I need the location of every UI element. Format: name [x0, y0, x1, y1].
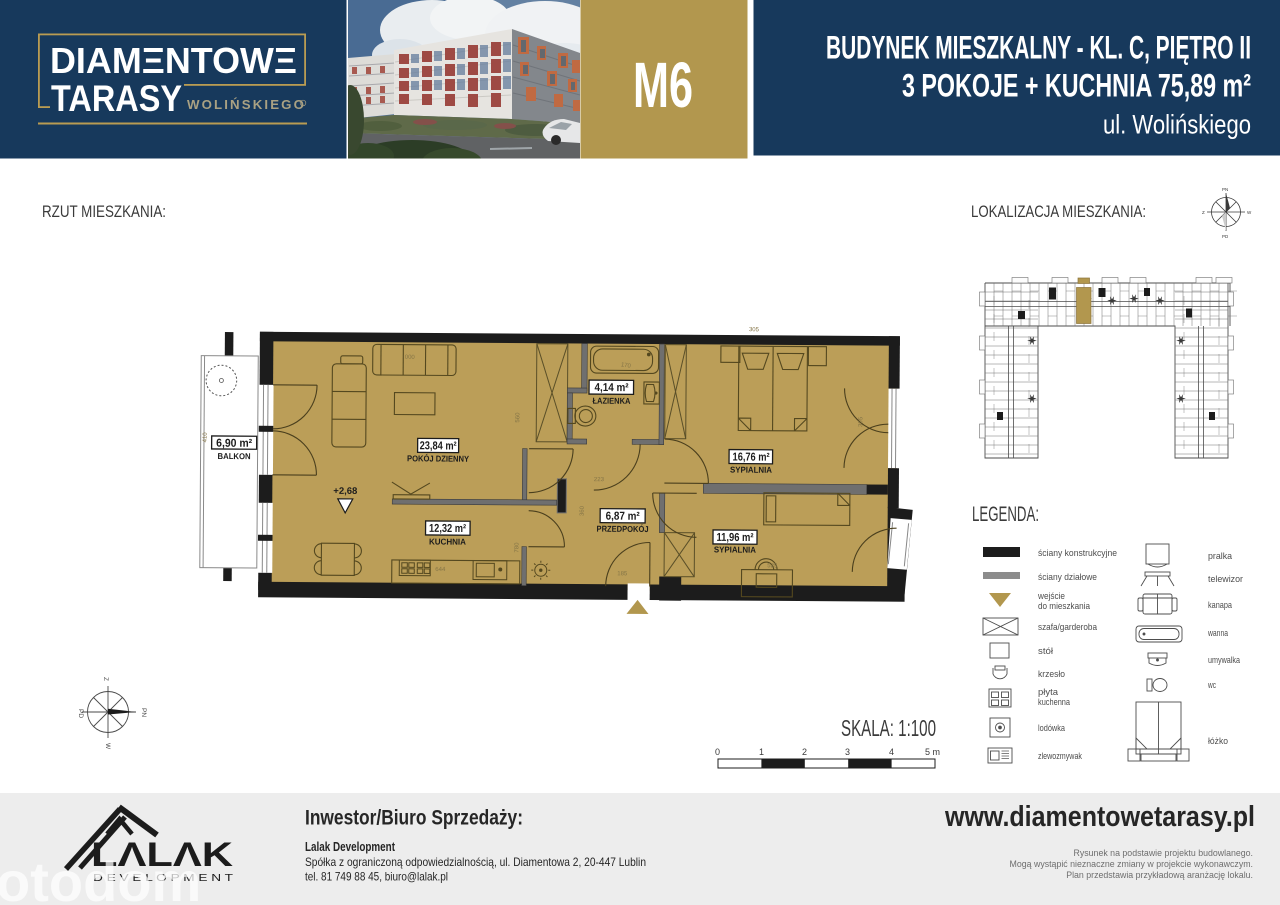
svg-text:644: 644 — [435, 567, 446, 573]
svg-text:2: 2 — [802, 747, 807, 757]
svg-text:6,87 m²: 6,87 m² — [606, 511, 640, 523]
svg-text:12,32 m²: 12,32 m² — [429, 523, 466, 535]
svg-text:LOKALIZACJA MIESZKANIA:: LOKALIZACJA MIESZKANIA: — [971, 202, 1146, 221]
svg-text:łóżko: łóżko — [1208, 736, 1228, 747]
svg-text:lodówka: lodówka — [1038, 723, 1066, 734]
svg-text:4,14 m²: 4,14 m² — [595, 382, 629, 394]
svg-text:Lalak Development: Lalak Development — [305, 840, 396, 854]
svg-text:wanna: wanna — [1207, 628, 1228, 639]
svg-text:SKALA: 1:100: SKALA: 1:100 — [841, 715, 936, 741]
svg-text:RZUT MIESZKANIA:: RZUT MIESZKANIA: — [42, 202, 166, 221]
svg-text:SYPIALNIA: SYPIALNIA — [714, 544, 756, 554]
svg-text:Mogą wystąpić nieznaczne zmian: Mogą wystąpić nieznaczne zmiany w projek… — [1010, 859, 1253, 869]
svg-text:410: 410 — [203, 432, 209, 443]
svg-text:stół: stół — [1038, 646, 1054, 657]
svg-text:PN: PN — [140, 708, 147, 717]
svg-text:LEGENDA:: LEGENDA: — [972, 503, 1039, 526]
svg-text:do mieszkania: do mieszkania — [1038, 601, 1091, 612]
svg-text:305: 305 — [858, 416, 864, 427]
svg-text:000: 000 — [405, 355, 416, 361]
svg-text:PN: PN — [1222, 187, 1228, 192]
svg-text:Z: Z — [102, 677, 109, 681]
svg-text:PD: PD — [77, 709, 84, 718]
svg-text:6,90 m²: 6,90 m² — [216, 438, 252, 450]
svg-text:PRZEDPOKÓJ: PRZEDPOKÓJ — [597, 523, 649, 534]
svg-text:525: 525 — [767, 563, 778, 569]
svg-text:Plan przedstawia przykładową a: Plan przedstawia przykładową aranżację l… — [1066, 870, 1253, 880]
svg-text:ul. Wolińskiego: ul. Wolińskiego — [1103, 110, 1251, 140]
svg-text:11,96 m²: 11,96 m² — [716, 532, 753, 544]
svg-text:wc: wc — [1207, 680, 1216, 691]
svg-text:ściany działowe: ściany działowe — [1038, 572, 1097, 583]
svg-text:pralka: pralka — [1208, 551, 1233, 562]
svg-text:umywalka: umywalka — [1208, 655, 1241, 666]
svg-text:PD: PD — [1222, 234, 1229, 239]
svg-text:WOLIŃSKIEGO: WOLIŃSKIEGO — [187, 97, 306, 112]
svg-text:780: 780 — [514, 542, 520, 553]
svg-text:TARASY: TARASY — [51, 78, 182, 119]
svg-text:zlewozmywak: zlewozmywak — [1038, 751, 1082, 762]
svg-text:Spółka z ograniczoną odpowiedz: Spółka z ograniczoną odpowiedzialnością,… — [305, 855, 646, 869]
svg-text:560: 560 — [515, 412, 521, 423]
svg-text:ściany konstrukcyjne: ściany konstrukcyjne — [1038, 548, 1117, 559]
svg-text:M6: M6 — [633, 49, 693, 121]
svg-text:23,84 m²: 23,84 m² — [420, 440, 457, 452]
svg-text:5 m: 5 m — [925, 747, 940, 757]
svg-text:305: 305 — [749, 327, 760, 333]
svg-text:KUCHNIA: KUCHNIA — [429, 536, 466, 546]
svg-text:krzesło: krzesło — [1038, 669, 1065, 680]
svg-text:3 POKOJE + KUCHNIA 75,89 m²: 3 POKOJE + KUCHNIA 75,89 m² — [902, 68, 1251, 104]
svg-text:4: 4 — [889, 747, 894, 757]
svg-text:16,76 m²: 16,76 m² — [733, 451, 770, 463]
svg-text:DIAMΞNTOWΞ: DIAMΞNTOWΞ — [50, 40, 297, 81]
svg-text:otodom: otodom — [0, 850, 201, 905]
svg-text:Z: Z — [1202, 210, 1205, 215]
svg-text:ŁAZIENKA: ŁAZIENKA — [592, 396, 630, 406]
svg-text:185: 185 — [617, 571, 628, 577]
svg-text:tel. 81 749 88 45, biuro@lalak: tel. 81 749 88 45, biuro@lalak.pl — [305, 870, 448, 884]
svg-text:kanapa: kanapa — [1208, 600, 1233, 611]
svg-text:BALKON: BALKON — [218, 451, 251, 461]
svg-text:Rysunek na podstawie projektu: Rysunek na podstawie projektu budowlaneg… — [1074, 848, 1253, 858]
svg-text:Inwestor/Biuro Sprzedaży:: Inwestor/Biuro Sprzedaży: — [305, 807, 523, 830]
svg-text:0: 0 — [715, 747, 720, 757]
svg-text:W: W — [104, 743, 111, 750]
svg-text:223: 223 — [594, 477, 605, 483]
svg-text:www.diamentowetarasy.pl: www.diamentowetarasy.pl — [944, 801, 1255, 833]
svg-text:SYPIALNIA: SYPIALNIA — [730, 465, 772, 475]
svg-text:1: 1 — [759, 747, 764, 757]
svg-text:szafa/garderoba: szafa/garderoba — [1038, 622, 1098, 633]
svg-text:360: 360 — [580, 505, 586, 516]
svg-text:BUDYNEK MIESZKALNY - KL. C, PI: BUDYNEK MIESZKALNY - KL. C, PIĘTRO II — [826, 30, 1251, 66]
svg-text:+2,68: +2,68 — [333, 486, 357, 497]
svg-text:3: 3 — [845, 747, 850, 757]
svg-text:kuchenna: kuchenna — [1038, 697, 1071, 708]
svg-text:POKÓJ DZIENNY: POKÓJ DZIENNY — [407, 452, 469, 463]
svg-text:telewizor: telewizor — [1208, 574, 1243, 585]
